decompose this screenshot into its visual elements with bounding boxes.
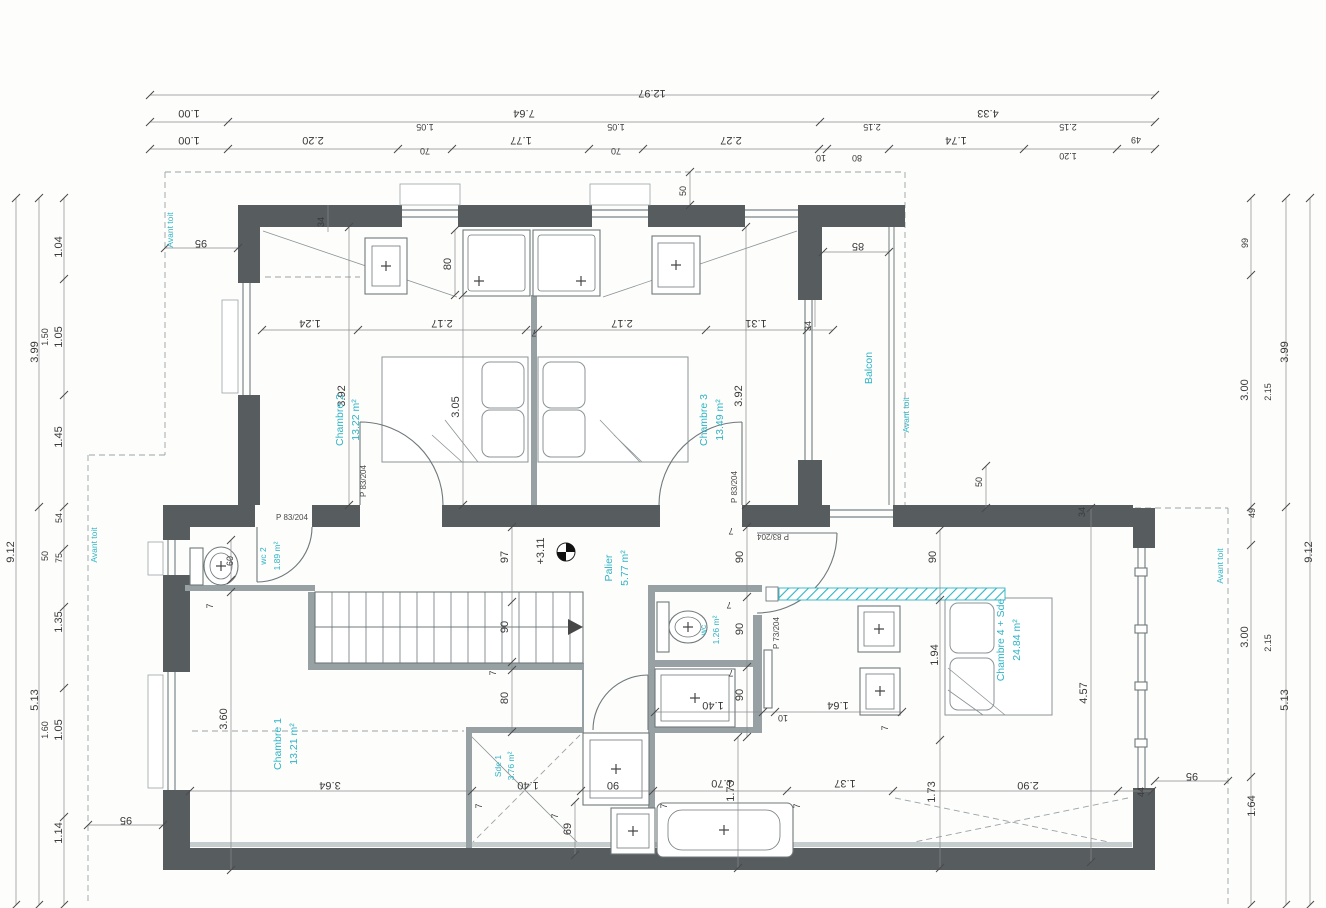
dim-label: 85	[852, 240, 864, 252]
dim-label: 1.73	[926, 781, 938, 802]
dim-label: 12.97	[638, 87, 666, 99]
dim-label: 2.17	[611, 317, 632, 329]
eave-label: Avant toit	[1215, 548, 1225, 584]
dim-label: 7	[550, 813, 560, 818]
dim-label: 1.05	[416, 122, 434, 132]
dim-label: 7	[728, 526, 733, 536]
dim-label: 9.12	[5, 541, 17, 562]
dim-label: 3.99	[1279, 341, 1291, 362]
room-area-chambre1: 13.21 m²	[288, 723, 300, 765]
room-area-wc: 1.26 m²	[711, 615, 721, 644]
dim-label: 60	[225, 556, 235, 566]
room-label-chambre4: Chambre 4 + Sde	[995, 599, 1007, 682]
dim-label: 2.15	[1263, 634, 1273, 652]
room-area-sde1: 3.76 m²	[506, 751, 516, 780]
dim-label: 80	[442, 258, 454, 270]
door-label: P 83/204	[757, 532, 789, 541]
dim-label: 50	[678, 186, 688, 196]
dim-label: 34	[803, 321, 813, 331]
dim-label: 50	[974, 477, 984, 487]
dim-label: 97	[499, 551, 511, 563]
room-area-chambre3: 13.49 m²	[714, 399, 726, 441]
room-area-chambre2: 13.22 m²	[350, 399, 362, 441]
floor-plan-page: 12.97 1.00 7.64 4.33 1.00 2.20 70 1.77 7…	[0, 0, 1326, 908]
dim-label: 95	[120, 814, 132, 826]
dim-label: 2.15	[863, 122, 881, 132]
eave-label: Avant toit	[901, 397, 911, 433]
dim-label: 95	[1186, 770, 1198, 782]
dim-label: 1.77	[510, 134, 531, 146]
dim-label: 7	[474, 803, 484, 808]
dim-label: 7.64	[513, 107, 534, 119]
room-label-wc: wc	[698, 624, 708, 636]
dim-label: 10	[778, 713, 788, 723]
dim-label: 1.73	[725, 780, 737, 801]
dim-label: 1.05	[53, 326, 65, 347]
dim-label: 99	[1240, 238, 1250, 248]
room-label-wc2: wc 2	[258, 547, 268, 566]
level-label: +3.11	[535, 537, 547, 564]
dim-label: 34	[316, 217, 326, 227]
dim-label: 1.31	[745, 317, 766, 329]
floorplan-svg: 12.97 1.00 7.64 4.33 1.00 2.20 70 1.77 7…	[0, 0, 1326, 908]
dim-label: 49	[1131, 135, 1141, 145]
dim-label: 7	[880, 725, 890, 730]
dim-label: 70	[611, 146, 621, 156]
dim-label: 1.04	[53, 236, 65, 257]
room-label-chambre3: Chambre 3	[698, 394, 710, 446]
dim-label: 1.05	[53, 719, 65, 740]
dim-label: 3.05	[450, 396, 462, 417]
dim-label: 1.74	[945, 134, 966, 146]
dim-label: 5.13	[29, 689, 41, 710]
dim-label: 44	[1136, 787, 1146, 797]
dim-label: 90	[734, 623, 746, 635]
dim-label: 54	[54, 513, 64, 523]
dim-label: 7	[488, 670, 498, 675]
dim-label: 2.27	[720, 134, 741, 146]
dim-label: 90	[499, 621, 511, 633]
dim-label: 7	[792, 803, 802, 808]
dim-label: 95	[195, 237, 207, 249]
room-area-palier: 5.77 m²	[619, 550, 631, 586]
dim-label: 7	[659, 803, 669, 808]
door-label: P 83/204	[730, 471, 739, 503]
dim-label: 7	[205, 603, 215, 608]
dim-label: 3.00	[1239, 379, 1251, 400]
dim-label: 80	[852, 153, 862, 163]
room-label-palier: Palier	[603, 554, 615, 581]
room-label-chambre2: Chambre 2	[334, 394, 346, 446]
dim-label: 1.37	[834, 777, 855, 789]
room-area-wc2: 1.89 m²	[272, 541, 282, 570]
dim-label: 1.40	[517, 779, 538, 791]
dim-label: 90	[607, 779, 619, 791]
dim-label: 1.64	[1246, 795, 1258, 816]
dim-label: 4.57	[1078, 682, 1090, 703]
dim-label: 2.90	[1017, 779, 1038, 791]
dim-label: 49	[1247, 508, 1257, 518]
dim-label: 2.15	[1263, 383, 1273, 401]
dim-label: 10	[816, 153, 826, 163]
room-area-chambre4: 24.84 m²	[1011, 619, 1023, 661]
room-label-sde1: Sde 1	[493, 755, 503, 777]
dim-label: 50	[40, 551, 50, 561]
room-label-balcon: Balcon	[863, 352, 875, 384]
dim-label: 90	[734, 689, 746, 701]
dim-label: 90	[734, 551, 746, 563]
dim-label: 69	[562, 823, 574, 835]
dim-label: 1.60	[40, 721, 50, 739]
dim-label: 2.15	[1059, 122, 1077, 132]
dim-label: 1.50	[40, 328, 50, 346]
dim-label: 7	[531, 328, 536, 338]
dim-label: 1.05	[607, 122, 625, 132]
room-label-chambre1: Chambre 1	[272, 718, 284, 770]
dim-label: 3.00	[1239, 626, 1251, 647]
door-label: P 83/204	[276, 513, 308, 522]
dim-label: 1.14	[53, 822, 65, 843]
dim-label: 1.35	[53, 611, 65, 632]
dim-label: 1.00	[178, 134, 199, 146]
dim-label: 1.94	[929, 644, 941, 665]
dim-label: 70	[420, 146, 430, 156]
dim-label: 1.24	[299, 317, 320, 329]
dim-label: 1.40	[702, 699, 723, 711]
door-label: P 83/204	[359, 465, 368, 497]
dim-label: 1.00	[178, 107, 199, 119]
dim-label: 80	[499, 692, 511, 704]
dim-label: 1.64	[827, 699, 848, 711]
dim-label: 2.17	[431, 317, 452, 329]
dim-label: 1.45	[53, 426, 65, 447]
glass-partition-hatched	[766, 587, 1005, 601]
dim-label: 90	[927, 551, 939, 563]
dim-label: 3.60	[218, 708, 230, 729]
level-marker	[557, 543, 575, 561]
dim-label: 7	[726, 600, 731, 610]
dim-label: 3.92	[733, 385, 745, 406]
dim-label: 4.33	[977, 107, 998, 119]
dim-label: 2.20	[302, 134, 323, 146]
door-label: P 73/204	[772, 617, 781, 649]
eave-label: Avant toit	[89, 527, 99, 563]
dim-label: 34	[1077, 507, 1087, 517]
stairs	[315, 592, 583, 663]
dim-label: 1.20	[1059, 151, 1077, 161]
dim-label: 3.64	[319, 779, 340, 791]
eave-label: Avant toit	[165, 212, 175, 248]
dim-label: 5.13	[1279, 689, 1291, 710]
dim-label: 9.12	[1303, 541, 1315, 562]
dim-label: 75	[54, 553, 64, 563]
dim-label: 7	[728, 668, 733, 678]
